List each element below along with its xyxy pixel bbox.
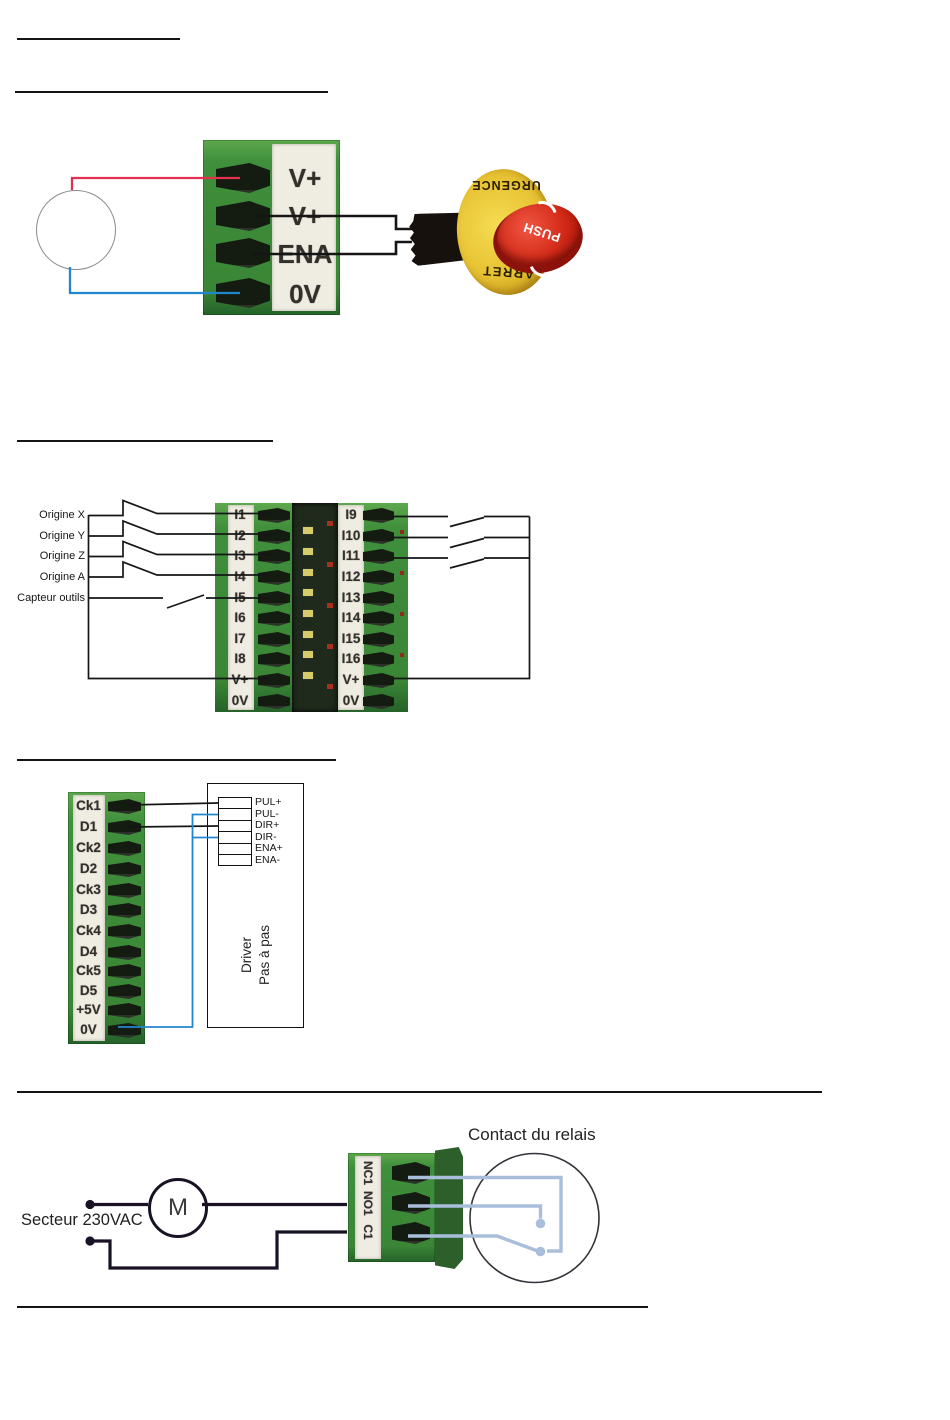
wire-mains-to-c1 (90, 1232, 347, 1268)
relay-contact-dot-no (536, 1219, 546, 1229)
terminal-label: I11 (333, 549, 369, 563)
terminal-slot (108, 841, 141, 856)
terminal-label: Ck5 (70, 964, 107, 978)
relay-contact-title: Contact du relais (468, 1125, 596, 1145)
driver-name-line1: Driver (238, 895, 256, 1015)
relay-block-side (435, 1147, 463, 1269)
terminal-slot (108, 883, 141, 898)
pcb-led (303, 548, 313, 555)
driver-name-label: Driver Pas à pas (201, 895, 311, 1015)
terminal-label: D4 (70, 945, 107, 959)
terminal-slot-nc1 (392, 1162, 430, 1184)
pcb-component (327, 603, 333, 608)
terminal-label: I9 (333, 508, 369, 522)
switch-i10 (392, 538, 530, 548)
pcb-component (400, 571, 404, 575)
driver-terminal-block: Ck1 D1 Ck2 D2 Ck3 D3 Ck4 D4 Ck5 D5 +5V 0… (68, 792, 145, 1044)
mains-node-dot (85, 1200, 94, 1209)
terminal-slot-vplus1 (216, 163, 270, 193)
relay-terminal-block: NC1 NO1 C1 (348, 1153, 435, 1262)
terminal-label: V+ (273, 201, 337, 231)
terminal-label: I8 (223, 652, 257, 666)
terminal-label: NO1 (360, 1191, 376, 1215)
terminal-label: I12 (333, 570, 369, 584)
terminal-label: 0V (70, 1023, 107, 1037)
input-switch-label: Origine Z (5, 550, 85, 562)
terminal-slot (108, 799, 141, 814)
terminal-slot-vplus2 (216, 201, 270, 231)
switch-i11 (392, 558, 530, 568)
terminal-slot (108, 924, 141, 939)
terminal-label: I15 (333, 632, 369, 646)
terminal-label: Ck4 (70, 924, 107, 938)
terminal-label: I3 (223, 549, 257, 563)
terminal-label: Ck1 (70, 799, 107, 813)
power-source-circle (36, 190, 116, 270)
terminal-label: V+ (223, 673, 257, 687)
terminal-label: I5 (223, 591, 257, 605)
heading-underline-2 (15, 91, 328, 93)
pcb-component (327, 644, 333, 649)
terminal-label: 0V (223, 694, 257, 708)
driver-pin-cell (219, 844, 251, 855)
pcb-led (303, 589, 313, 596)
driver-pin-cell (219, 855, 251, 865)
terminal-label: I13 (333, 591, 369, 605)
pcb-led (303, 651, 313, 658)
driver-pin-cell (219, 821, 251, 832)
terminal-label: Ck2 (70, 841, 107, 855)
input-switch-label: Capteur outils (5, 592, 85, 604)
driver-pin-label: ENA- (255, 855, 297, 867)
input-switch-label: Origine Y (5, 530, 85, 542)
relay-contact-dot-common (536, 1247, 546, 1257)
terminal-label: D5 (70, 984, 107, 998)
driver-pin-cell (219, 832, 251, 843)
pcb-component (327, 562, 333, 567)
pcb-component (400, 612, 404, 616)
document-page: V+ V+ ENA 0V URGENCE ARRET PUSH Origine … (0, 0, 950, 1420)
heading-underline-4 (17, 759, 336, 761)
terminal-slot-c1 (392, 1222, 430, 1244)
terminal-label: I10 (333, 529, 369, 543)
terminal-label: 0V (273, 279, 337, 309)
input-switch-label: Origine X (5, 509, 85, 521)
pcb-led (303, 527, 313, 534)
terminal-label: C1 (360, 1220, 376, 1244)
pcb-component (327, 521, 333, 526)
terminal-label: 0V (333, 694, 369, 708)
wire-right-bus (392, 517, 530, 679)
terminal-label: NC1 (360, 1161, 376, 1185)
pcb-component (400, 653, 404, 657)
terminal-label: I4 (223, 570, 257, 584)
terminal-label: D1 (70, 820, 107, 834)
terminal-label: I16 (333, 652, 369, 666)
switch-i9 (392, 517, 530, 527)
mains-node-dot (85, 1236, 94, 1245)
driver-pin-cell (219, 809, 251, 820)
terminal-slot (108, 1003, 141, 1018)
terminal-label: V+ (333, 673, 369, 687)
motor-symbol: M (148, 1178, 208, 1238)
motor-letter: M (168, 1194, 188, 1222)
terminal-label: I6 (223, 611, 257, 625)
mains-label: Secteur 230VAC (21, 1211, 143, 1230)
terminal-slot (108, 984, 141, 999)
estop-ring-top-text: URGENCE (462, 176, 550, 192)
heading-underline-1 (17, 38, 180, 40)
terminal-slot (108, 862, 141, 877)
relay-contact-circle (470, 1154, 599, 1283)
terminal-slot (108, 1023, 141, 1038)
pcb-component (400, 530, 404, 534)
terminal-slot (108, 964, 141, 979)
terminal-slot-ena (216, 238, 270, 268)
pcb-led (303, 672, 313, 679)
pcb-led (303, 631, 313, 638)
pcb-led (303, 569, 313, 576)
inputs-board: I1 I2 I3 I4 I5 I6 I7 I8 V+ 0V I9 I10 I11… (215, 503, 408, 712)
input-switch-label: Origine A (5, 571, 85, 583)
terminal-label: Ck3 (70, 883, 107, 897)
terminal-label: I7 (223, 632, 257, 646)
section-divider-rule (17, 1091, 822, 1093)
terminal-slot (108, 820, 141, 835)
driver-pin-cell (219, 798, 251, 809)
terminal-block-power: V+ V+ ENA 0V (203, 140, 340, 315)
pcb-led (303, 610, 313, 617)
terminal-slot (108, 945, 141, 960)
terminal-label: D3 (70, 903, 107, 917)
terminal-label: ENA (273, 239, 337, 269)
terminal-slot-0v (216, 278, 270, 308)
terminal-label: +5V (70, 1003, 107, 1017)
bottom-rule (17, 1306, 648, 1308)
pcb-component (327, 684, 333, 689)
terminal-label: I2 (223, 529, 257, 543)
heading-underline-3 (17, 440, 273, 442)
terminal-label: D2 (70, 862, 107, 876)
terminal-label: I1 (223, 508, 257, 522)
driver-pin-stack (218, 797, 252, 866)
driver-name-line2: Pas à pas (256, 895, 274, 1015)
terminal-label: V+ (273, 163, 337, 193)
terminal-slot-no1 (392, 1192, 430, 1214)
terminal-slot (108, 903, 141, 918)
terminal-label: I14 (333, 611, 369, 625)
